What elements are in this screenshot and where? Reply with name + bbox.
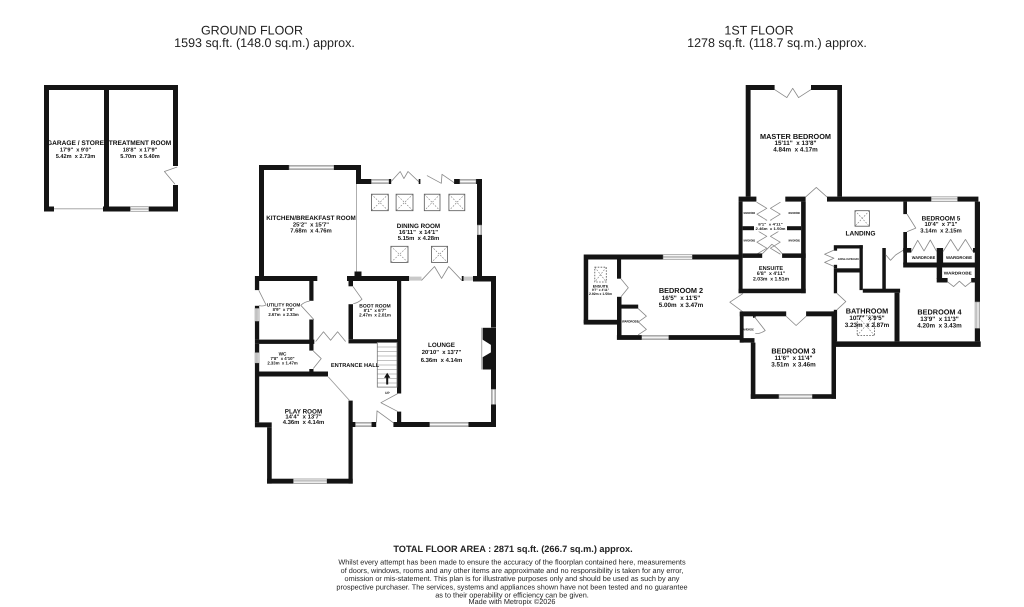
svg-text:2.03m x 1.51m: 2.03m x 1.51m [753,276,789,282]
svg-text:4.20m x 3.43m: 4.20m x 3.43m [917,322,962,329]
svg-text:10'4" x 7'1": 10'4" x 7'1" [925,221,958,228]
svg-text:WARDROBE: WARDROBE [744,211,756,215]
svg-text:7.68m x 4.76m: 7.68m x 4.76m [290,227,332,234]
svg-text:1593 sq.ft. (148.0 sq.m.) appr: 1593 sq.ft. (148.0 sq.m.) approx. [174,36,355,50]
svg-text:1278 sq.ft. (118.7 sq.m.) appr: 1278 sq.ft. (118.7 sq.m.) approx. [687,36,867,50]
svg-text:4.84m x 4.17m: 4.84m x 4.17m [773,147,818,154]
svg-text:2.47m x 2.01m: 2.47m x 2.01m [359,313,391,318]
svg-text:WARDROBE: WARDROBE [944,271,972,276]
svg-text:6.36m x 4.14m: 6.36m x 4.14m [421,357,463,364]
svg-text:WARDROBE: WARDROBE [788,211,800,215]
svg-text:3.14m x 2.15m: 3.14m x 2.15m [920,227,962,234]
svg-text:LOUNGE: LOUNGE [428,342,455,349]
svg-text:Made with Metropix ©2026: Made with Metropix ©2026 [469,597,556,606]
svg-text:10'7" x 9'5": 10'7" x 9'5" [849,315,884,322]
svg-text:WARDROBE: WARDROBE [744,238,756,242]
svg-text:LANDING: LANDING [845,230,875,237]
svg-text:DINING ROOM: DINING ROOM [397,223,440,230]
svg-text:BEDROOM 2: BEDROOM 2 [659,286,703,295]
svg-text:3.23m x 2.87m: 3.23m x 2.87m [845,322,890,329]
svg-text:3.51m x 3.46m: 3.51m x 3.46m [771,361,816,368]
svg-text:2.33m x 1.47m: 2.33m x 1.47m [267,360,298,365]
svg-text:5.70m x 5.40m: 5.70m x 5.40m [120,154,160,160]
svg-text:ENTRANCE HALL: ENTRANCE HALL [331,363,380,369]
svg-text:16'5" x 11'5": 16'5" x 11'5" [662,295,700,302]
svg-text:TOTAL FLOOR AREA : 2871 sq.ft.: TOTAL FLOOR AREA : 2871 sq.ft. (266.7 sq… [393,544,632,554]
svg-text:2.92m x 1.50m: 2.92m x 1.50m [589,292,612,296]
svg-text:WARDROBE: WARDROBE [946,255,972,260]
svg-text:5.15m x 4.28m: 5.15m x 4.28m [398,235,440,242]
svg-text:WARDROBE: WARDROBE [743,328,754,332]
svg-text:2.67m x 2.33m: 2.67m x 2.33m [268,312,299,317]
svg-text:AIRING CUPBOARD: AIRING CUPBOARD [838,258,859,261]
svg-text:20'10" x 13'7": 20'10" x 13'7" [422,349,462,356]
svg-text:TREATMENT ROOM: TREATMENT ROOM [109,140,172,147]
svg-text:5.42m x 2.73m: 5.42m x 2.73m [56,154,96,160]
svg-text:25'2" x 15'7": 25'2" x 15'7" [293,221,329,228]
svg-text:16'11" x 14'1": 16'11" x 14'1" [399,229,438,236]
svg-text:2.46m x 1.50m: 2.46m x 1.50m [756,227,786,231]
svg-text:KITCHEN/BREAKFAST ROOM: KITCHEN/BREAKFAST ROOM [266,215,356,222]
svg-text:17'9" x 9'0": 17'9" x 9'0" [60,148,92,154]
svg-text:WARDROBE: WARDROBE [622,319,639,323]
svg-text:5.00m x 3.47m: 5.00m x 3.47m [659,302,704,309]
svg-text:4.36m x 4.14m: 4.36m x 4.14m [283,419,325,426]
svg-text:18'8" x 17'9": 18'8" x 17'9" [123,148,158,154]
svg-text:WARDROBE: WARDROBE [788,238,800,242]
svg-text:GARAGE / STORE: GARAGE / STORE [47,140,105,147]
svg-text:WARDROBE: WARDROBE [912,255,936,260]
